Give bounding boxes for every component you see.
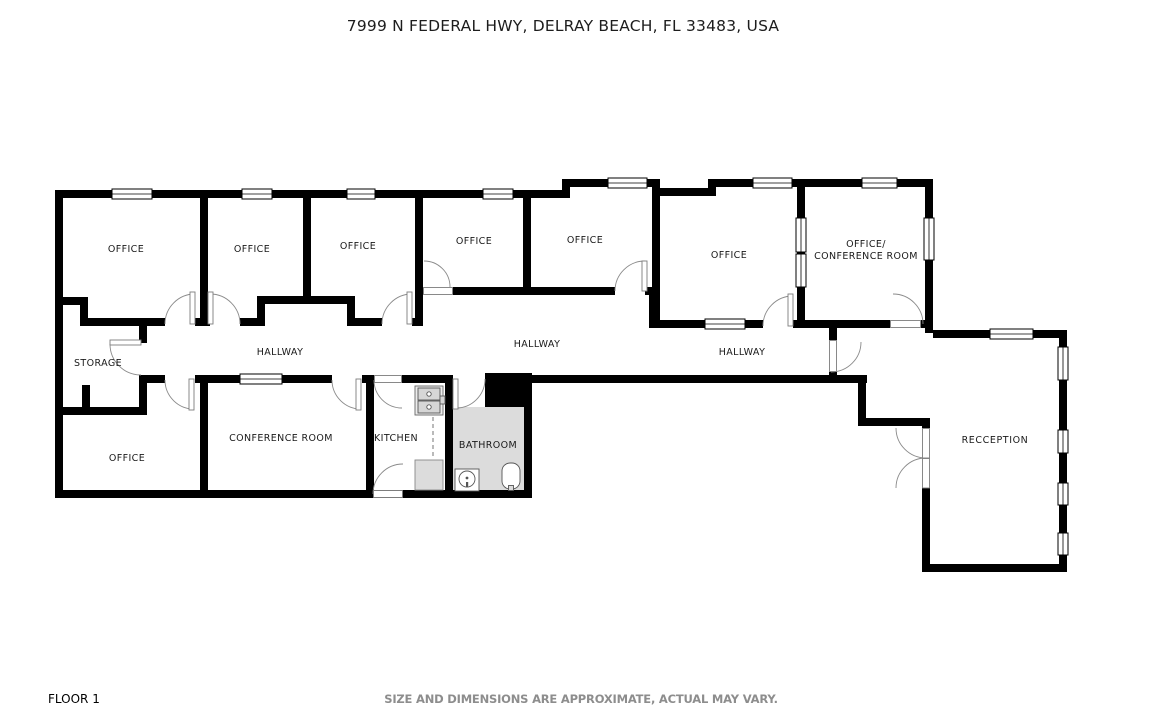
room-label-office-4: OFFICE	[456, 236, 492, 247]
room-label-office-lower-left: OFFICE	[109, 453, 145, 464]
room-label-office-conference-2: CONFERENCE ROOM	[814, 251, 918, 262]
room-label-hallway-west: HALLWAY	[257, 347, 304, 358]
kitchen-faucet-icon	[440, 396, 445, 404]
room-label-office-conference-1: OFFICE/	[846, 239, 886, 250]
room-label-office-5: OFFICE	[567, 235, 603, 246]
room-label-storage: STORAGE	[74, 358, 122, 369]
sink-spout-icon	[466, 482, 468, 487]
room-label-reception: RECCEPTION	[962, 435, 1029, 446]
sink-drain-icon	[427, 405, 431, 409]
room-label-office-3: OFFICE	[340, 241, 376, 252]
sink-drain-icon	[466, 477, 469, 480]
room-label-bathroom: BATHROOM	[459, 440, 517, 451]
room-labels: OFFICE OFFICE OFFICE OFFICE OFFICE OFFIC…	[74, 235, 1028, 464]
room-label-kitchen: KITCHEN	[374, 433, 418, 444]
page-title: 7999 N FEDERAL HWY, DELRAY BEACH, FL 334…	[347, 17, 780, 35]
sink-drain-icon	[427, 392, 431, 396]
room-label-office-1: OFFICE	[108, 244, 144, 255]
floor-plan: 7999 N FEDERAL HWY, DELRAY BEACH, FL 334…	[0, 0, 1152, 720]
disclaimer-text: SIZE AND DIMENSIONS ARE APPROXIMATE, ACT…	[384, 692, 778, 706]
room-label-office-2: OFFICE	[234, 244, 270, 255]
kitchen-counter	[415, 460, 443, 490]
kitchen-fixtures	[415, 386, 445, 490]
room-label-conference-room: CONFERENCE ROOM	[229, 433, 333, 444]
walls	[55, 179, 1067, 572]
room-label-hallway-east: HALLWAY	[719, 347, 766, 358]
floor-plan-page: 7999 N FEDERAL HWY, DELRAY BEACH, FL 334…	[0, 0, 1152, 720]
toilet-flush-icon	[509, 486, 514, 491]
room-label-office-6: OFFICE	[711, 250, 747, 261]
room-label-hallway-center: HALLWAY	[514, 339, 561, 350]
floor-label: FLOOR 1	[48, 692, 100, 706]
